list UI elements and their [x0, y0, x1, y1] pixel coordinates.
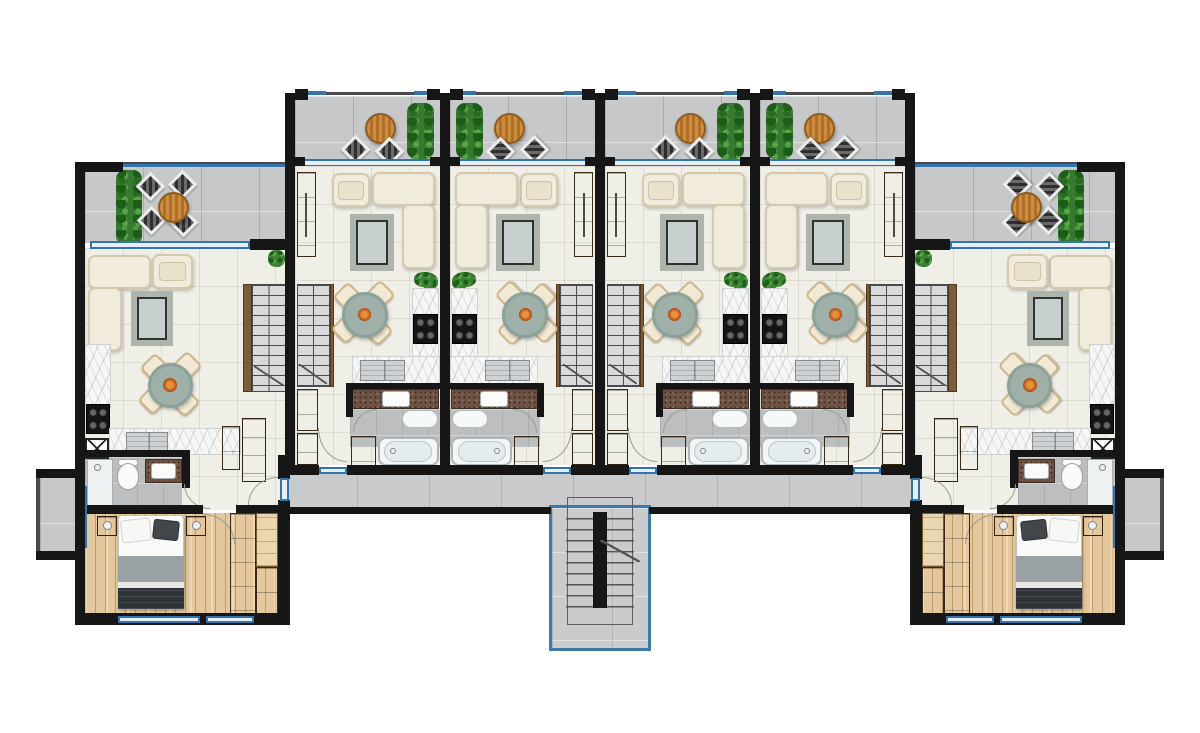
- unit-wardrobe-handle: [583, 193, 585, 237]
- unit-bath-cabinet: [351, 436, 376, 466]
- unit-stair-rail: [866, 284, 870, 387]
- unit-stair-cabinet: [297, 389, 318, 431]
- end-north-stub-wall: [75, 162, 123, 172]
- unit-bath-tub-small: [452, 410, 488, 428]
- unit-sofa-side: [712, 204, 745, 269]
- end-armchair-cushion: [159, 262, 186, 281]
- unit-stair-cabinet: [297, 433, 318, 465]
- unit-balcony-hedge: [766, 103, 793, 159]
- unit-south-wall: [605, 465, 629, 475]
- end-entry-door: [911, 478, 920, 501]
- end-sofa-top: [88, 255, 151, 289]
- end-sofa-side: [1078, 287, 1112, 351]
- unit-stair-rail: [556, 284, 560, 387]
- floor-plan-canvas: [0, 0, 1200, 733]
- end-bath-sink: [151, 463, 176, 479]
- unit-bath-tub-small: [712, 410, 748, 428]
- unit-stair-arrow: [563, 364, 591, 384]
- unit-coffee-table: [356, 220, 388, 265]
- party-wall: [440, 93, 450, 475]
- unit-stair-cabinet: [572, 433, 593, 465]
- unit-armchair-cushion: [338, 181, 364, 200]
- bed-pillow-dark: [152, 519, 180, 542]
- wardrobe-lower: [922, 567, 944, 615]
- unit-stair-arrow: [299, 364, 327, 384]
- wardrobe-column: [230, 513, 256, 615]
- end-north-stub-wall: [1077, 162, 1125, 172]
- unit-sofa-side: [455, 204, 488, 269]
- unit-bath-sink: [382, 391, 410, 407]
- unit-stair-arrow: [609, 364, 637, 384]
- unit-south-wall: [295, 465, 319, 475]
- unit-stair-cabinet: [882, 433, 903, 465]
- end-entry-wall: [278, 500, 290, 625]
- end-bath-sink: [1024, 463, 1049, 479]
- unit-bath-cabinet: [661, 436, 686, 466]
- bedroom-window: [946, 616, 994, 623]
- bed-foot-blanket: [118, 588, 184, 609]
- party-wall: [905, 93, 915, 475]
- unit-stair-rail: [640, 284, 644, 387]
- end-shower-head: [1099, 464, 1106, 471]
- end-stair-arrow: [916, 366, 946, 386]
- end-stair-stringer: [948, 284, 957, 392]
- end-stair-stringer: [243, 284, 252, 392]
- unit-dining-centerpiece: [519, 308, 532, 321]
- corridor-south-wall: [285, 507, 551, 514]
- end-sofa-top: [1049, 255, 1112, 289]
- end-tall-cabinet: [242, 418, 266, 482]
- wardrobe-column: [944, 513, 970, 615]
- end-balcony-table: [1011, 192, 1042, 223]
- end-plant: [268, 250, 285, 267]
- unit-bath-tub-small: [402, 410, 438, 428]
- unit-kitchen-sink: [670, 360, 715, 381]
- unit-south-wall: [760, 465, 853, 475]
- end-plant: [915, 250, 932, 267]
- end-tall-cabinet: [934, 418, 958, 482]
- unit-coffee-table: [502, 220, 534, 265]
- bed-pillow: [120, 517, 152, 543]
- end-kitchen-counter-tall: [1089, 344, 1115, 408]
- end-dining-centerpiece: [1023, 378, 1037, 392]
- unit-kitchen-stove: [413, 314, 438, 344]
- unit-balcony-corner: [760, 89, 773, 100]
- unit-dining-centerpiece: [358, 308, 371, 321]
- unit-bathtub-drain: [494, 448, 500, 454]
- unit-balcony-corner: [450, 89, 463, 100]
- unit-bath-sink: [480, 391, 508, 407]
- unit-wardrobe-handle: [615, 193, 617, 237]
- unit-entry-door: [629, 467, 657, 474]
- unit-entry-door: [319, 467, 347, 474]
- unit-hall-wall: [346, 383, 353, 417]
- unit-balcony-corner: [427, 89, 440, 100]
- end-balcony-slider: [90, 241, 250, 249]
- nightstand-lamp: [1088, 521, 1097, 530]
- unit-stair-cabinet: [882, 389, 903, 431]
- unit-wardrobe-handle: [305, 193, 307, 237]
- end-cabinet: [960, 426, 978, 470]
- unit-kitchen-plant: [764, 272, 786, 287]
- unit-bathtub-drain: [804, 448, 810, 454]
- end-toilet: [117, 463, 139, 490]
- unit-wardrobe-handle: [893, 193, 895, 237]
- unit-bathtub-drain: [390, 448, 396, 454]
- unit-bathtub-drain: [700, 448, 706, 454]
- unit-kitchen-stove: [723, 314, 748, 344]
- unit-sofa-side: [765, 204, 798, 269]
- end-balcony-table: [158, 192, 189, 223]
- end-dining-centerpiece: [163, 378, 177, 392]
- unit-armchair-cushion: [648, 181, 674, 200]
- end-west-wall: [75, 162, 85, 625]
- end-kitchen-counter-tall: [85, 344, 111, 408]
- end-coffee-table: [1033, 297, 1063, 340]
- wardrobe-open: [256, 513, 278, 567]
- end-kitchen-sink: [1032, 432, 1074, 452]
- unit-sofa-side: [402, 204, 435, 269]
- unit-kitchen-stove: [452, 314, 477, 344]
- bedroom-window: [1000, 616, 1082, 623]
- unit-sofa-top: [765, 172, 828, 206]
- unit-armchair-cushion: [526, 181, 552, 200]
- end-bedroom-wall: [997, 505, 1115, 514]
- unit-balcony-corner: [892, 89, 905, 100]
- bed-foot-blanket: [1016, 588, 1082, 609]
- unit-balcony-corner: [605, 89, 618, 100]
- unit-stair-cabinet: [572, 389, 593, 431]
- unit-kitchen-plant: [454, 272, 476, 287]
- unit-bath-tub-small: [762, 410, 798, 428]
- unit-hall-wall: [847, 383, 854, 417]
- side-balcony-edge: [1160, 478, 1164, 551]
- end-stair-arrow: [254, 366, 284, 386]
- unit-bath-sink: [692, 391, 720, 407]
- unit-dining-centerpiece: [668, 308, 681, 321]
- end-entry-door: [280, 478, 289, 501]
- unit-stair-rail: [330, 284, 334, 387]
- end-bedroom-wall: [85, 505, 203, 514]
- unit-entry-door: [543, 467, 571, 474]
- unit-sofa-top: [372, 172, 435, 206]
- bed-blanket: [118, 556, 184, 584]
- end-kitchen-stove: [86, 404, 110, 434]
- corridor-south-wall: [649, 507, 915, 514]
- unit-hall-wall: [656, 383, 663, 417]
- unit-south-wall: [571, 465, 595, 475]
- bed-blanket: [1016, 556, 1082, 584]
- end-balcony-slider: [950, 241, 1110, 249]
- unit-coffee-table: [666, 220, 698, 265]
- unit-hall-wall: [537, 383, 544, 417]
- bed-pillow-dark: [1020, 519, 1048, 542]
- end-kitchen-sink: [126, 432, 168, 452]
- party-wall: [750, 93, 760, 475]
- unit-stair-arrow: [873, 364, 901, 384]
- unit-south-wall: [657, 465, 750, 475]
- end-sofa-side: [88, 287, 122, 351]
- unit-kitchen-stove: [762, 314, 787, 344]
- unit-balcony-corner: [582, 89, 595, 100]
- unit-kitchen-plant: [724, 272, 746, 287]
- end-bath-wall-right: [182, 450, 190, 488]
- unit-sofa-top: [682, 172, 745, 206]
- unit-bath-cabinet: [824, 436, 849, 466]
- bedroom-window: [118, 616, 200, 623]
- end-kitchen-stove: [1090, 404, 1114, 434]
- unit-kitchen-plant: [414, 272, 436, 287]
- central-stair-arrow: [600, 540, 640, 562]
- wardrobe-open: [922, 513, 944, 567]
- unit-kitchen-sink: [360, 360, 405, 381]
- end-bath-wall: [1015, 450, 1115, 457]
- unit-coffee-table: [812, 220, 844, 265]
- unit-balcony-hedge: [717, 103, 744, 159]
- bedroom-window: [206, 616, 254, 623]
- party-wall: [595, 93, 605, 475]
- end-balcony-hedge: [1058, 170, 1084, 245]
- side-balcony-edge: [36, 478, 40, 551]
- end-coffee-table: [137, 297, 167, 340]
- unit-stair-cabinet: [607, 389, 628, 431]
- end-toilet: [1061, 463, 1083, 490]
- unit-armchair-cushion: [836, 181, 862, 200]
- unit-dining-centerpiece: [829, 308, 842, 321]
- end-bath-wall: [85, 450, 185, 457]
- unit-bath-cabinet: [514, 436, 539, 466]
- unit-stair-cabinet: [607, 433, 628, 465]
- unit-south-wall: [881, 465, 905, 475]
- unit-balcony-hedge: [407, 103, 434, 159]
- unit-kitchen-sink: [485, 360, 530, 381]
- nightstand-lamp: [103, 521, 112, 530]
- nightstand-lamp: [192, 521, 201, 530]
- end-west-wall: [1115, 162, 1125, 625]
- unit-bath-sink: [790, 391, 818, 407]
- end-entry-wall: [910, 500, 922, 625]
- unit-south-wall: [450, 465, 543, 475]
- end-bath-wall-right: [1010, 450, 1018, 488]
- end-shower-head: [94, 464, 101, 471]
- party-wall: [285, 93, 295, 475]
- unit-sofa-top: [455, 172, 518, 206]
- nightstand-lamp: [999, 521, 1008, 530]
- unit-balcony-corner: [295, 89, 308, 100]
- unit-south-wall: [347, 465, 440, 475]
- wardrobe-lower: [256, 567, 278, 615]
- end-balcony-hedge: [116, 170, 142, 245]
- unit-entry-door: [853, 467, 881, 474]
- unit-balcony-corner: [737, 89, 750, 100]
- unit-kitchen-sink: [795, 360, 840, 381]
- end-cabinet: [222, 426, 240, 470]
- bed-pillow: [1048, 517, 1080, 543]
- unit-balcony-hedge: [456, 103, 483, 159]
- end-armchair-cushion: [1014, 262, 1041, 281]
